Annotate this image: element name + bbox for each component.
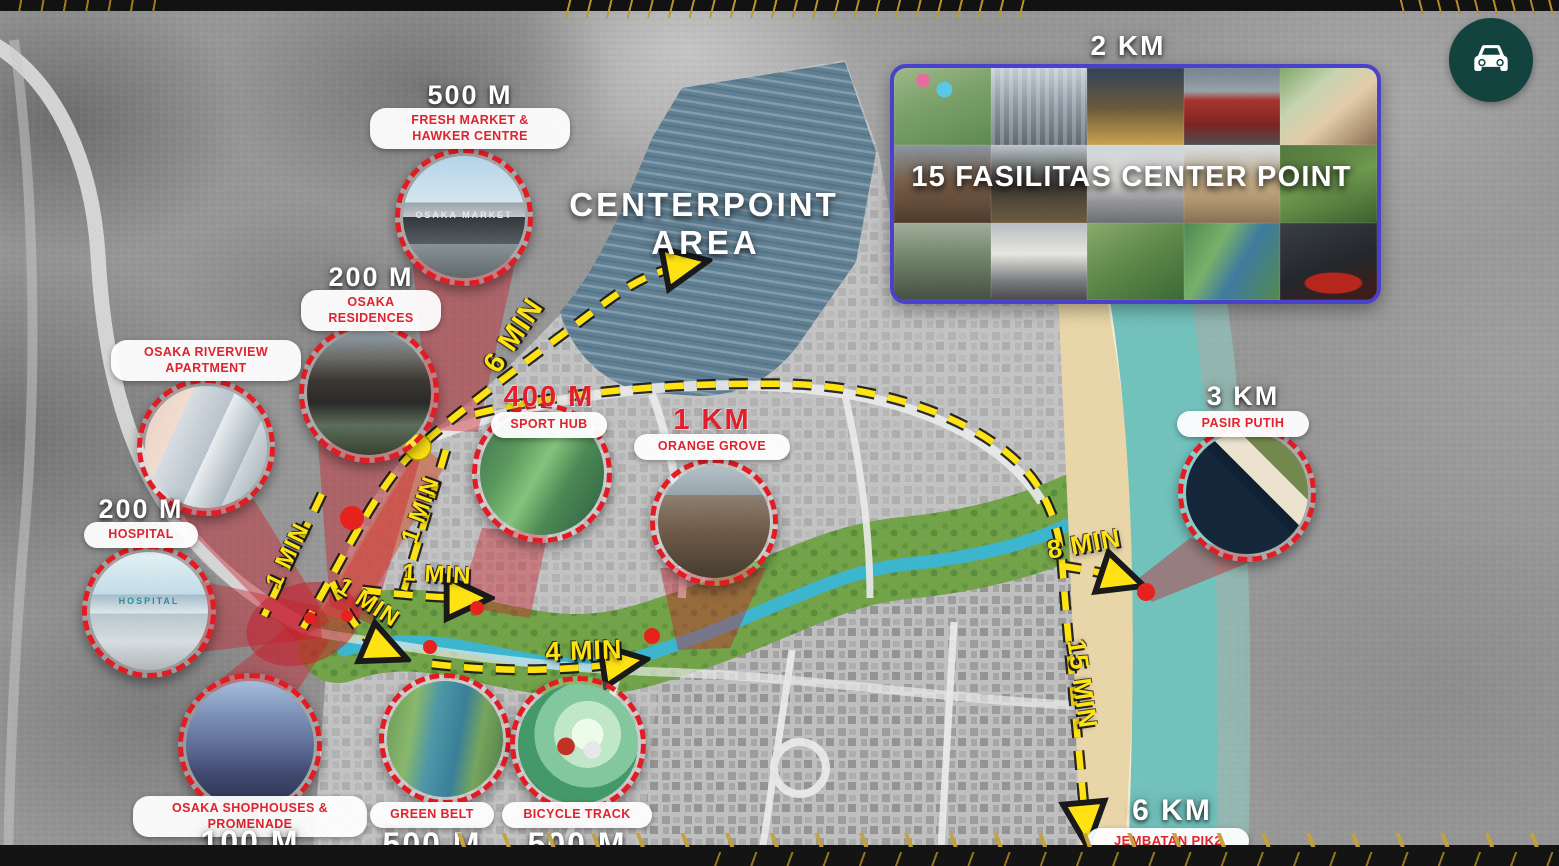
callout-orange-grove xyxy=(650,458,778,586)
facility-photo xyxy=(1280,223,1377,300)
facility-pill-orange-grove: ORANGE GROVE xyxy=(634,434,790,460)
callout-bicycle-track xyxy=(510,676,646,812)
bicycle-track-photo xyxy=(518,684,638,804)
facility-photo xyxy=(991,223,1088,300)
distance-label-pasir-putih: 3 KM xyxy=(1207,381,1280,412)
orange-grove-photo xyxy=(658,466,770,578)
facility-photo xyxy=(991,68,1088,145)
masterplan-slide: OSAKA MARKET HOSPITAL 500 M FRESH MARKET… xyxy=(0,0,1559,866)
facility-pill-hospital: HOSPITAL xyxy=(84,522,198,548)
callout-pasir-putih xyxy=(1178,424,1316,562)
facility-photo xyxy=(1184,68,1281,145)
distance-label-fresh-market: 500 M xyxy=(427,80,512,111)
distance-label-hospital: 200 M xyxy=(98,494,183,525)
facility-photo xyxy=(1087,223,1184,300)
distance-label-jembatan-pik2: 6 KM xyxy=(1132,794,1212,828)
facility-photo xyxy=(894,68,991,145)
distance-label-sport-hub: 400 M xyxy=(504,381,595,414)
gold-decoration xyxy=(560,0,1030,18)
callout-osaka-residences xyxy=(299,323,439,463)
gold-decoration xyxy=(10,0,160,12)
distance-label-orange-grove: 1 KM xyxy=(673,404,750,437)
market-sign-text: OSAKA MARKET xyxy=(403,210,525,220)
centerpoint-area-label-line1: CENTERPOINT xyxy=(569,186,839,224)
pasir-putih-photo xyxy=(1186,432,1308,554)
gold-decoration xyxy=(1395,0,1559,14)
riverview-apartment-photo xyxy=(145,386,267,508)
facility-pill-osaka-residences: OSAKA RESIDENCES xyxy=(301,290,441,331)
hospital-photo: HOSPITAL xyxy=(90,552,208,670)
facility-photo xyxy=(1184,223,1281,300)
facility-pill-pasir-putih: PASIR PUTIH xyxy=(1177,411,1309,437)
centerpoint-area-label-line2: AREA xyxy=(651,224,761,262)
facility-pill-sport-hub: SPORT HUB xyxy=(491,412,607,438)
green-belt-photo xyxy=(387,681,503,797)
callout-hospital: HOSPITAL xyxy=(82,544,216,678)
distance-label-osaka-residences: 200 M xyxy=(328,262,413,293)
gold-decoration xyxy=(430,833,1559,847)
facility-photo xyxy=(1280,68,1377,145)
route-time-4min: 4 MIN xyxy=(545,634,623,668)
facility-photo xyxy=(1087,68,1184,145)
gold-decoration xyxy=(700,852,1559,866)
fresh-market-photo: OSAKA MARKET xyxy=(403,156,525,278)
facility-pill-bicycle-track: BICYCLE TRACK xyxy=(502,802,652,828)
hospital-sign-text: HOSPITAL xyxy=(90,596,208,606)
panel-title: 15 FASILITAS CENTER POINT xyxy=(890,161,1373,194)
shophouses-photo xyxy=(186,681,314,809)
facility-pill-fresh-market: FRESH MARKET & HAWKER CENTRE xyxy=(370,108,570,149)
callout-fresh-market: OSAKA MARKET xyxy=(395,148,533,286)
car-mode-button[interactable] xyxy=(1449,18,1533,102)
side-road xyxy=(8,40,32,866)
route-time-1min-c: 1 MIN xyxy=(402,559,472,591)
distance-label-center-point: 2 KM xyxy=(1091,30,1166,62)
callout-green-belt xyxy=(379,673,511,805)
car-icon xyxy=(1465,34,1517,86)
facility-pill-osaka-riverview: OSAKA RIVERVIEW APARTMENT xyxy=(111,340,301,381)
facility-photo xyxy=(894,223,991,300)
facility-pill-green-belt: GREEN BELT xyxy=(370,802,494,828)
osaka-residences-photo xyxy=(307,331,431,455)
